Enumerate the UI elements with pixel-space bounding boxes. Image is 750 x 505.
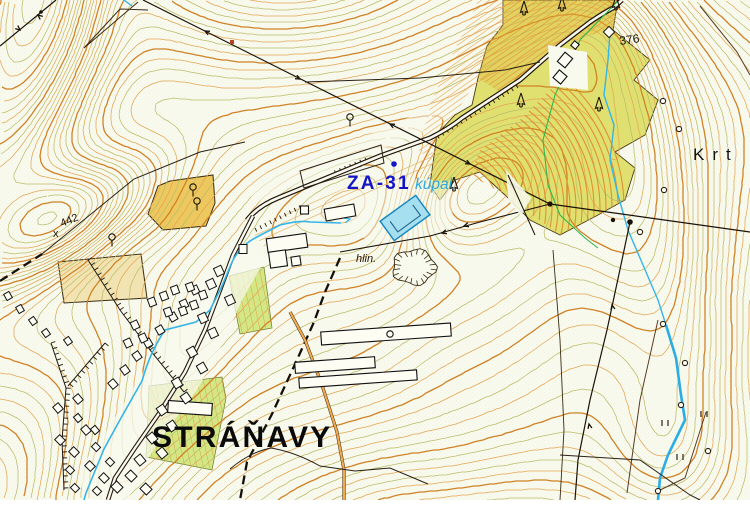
svg-text:Krt: Krt <box>693 145 739 164</box>
svg-text:ZA-31: ZA-31 <box>347 173 411 194</box>
svg-text:x: x <box>53 228 59 240</box>
svg-text:376: 376 <box>618 31 640 48</box>
svg-text:kúpal.: kúpal. <box>415 176 456 193</box>
svg-text:STRÁŇAVY: STRÁŇAVY <box>152 420 332 454</box>
svg-text:hlin.: hlin. <box>356 253 376 265</box>
